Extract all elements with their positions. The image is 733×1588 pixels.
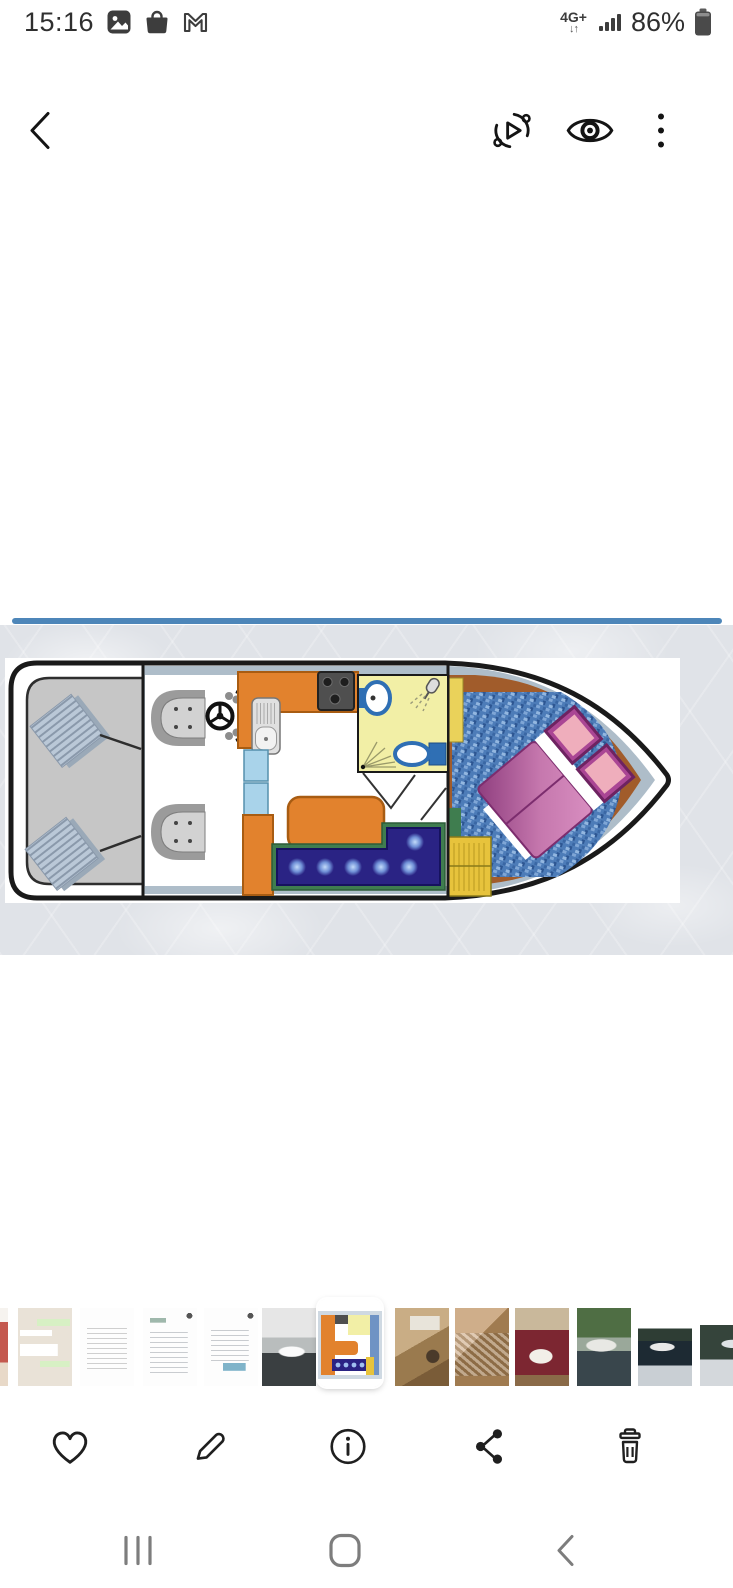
- more-options-button[interactable]: [653, 106, 669, 159]
- thumbnail-chat[interactable]: [18, 1308, 72, 1386]
- gmail-icon: [182, 10, 209, 34]
- thumbnail-document-3[interactable]: [204, 1308, 258, 1386]
- heart-icon: [49, 1427, 91, 1467]
- motion-photo-button[interactable]: [488, 106, 536, 159]
- thumbnail-floor-plan-selected[interactable]: [318, 1299, 382, 1387]
- signal-strength-icon: [597, 10, 623, 34]
- home-icon: [326, 1532, 364, 1570]
- status-time: 15:16: [24, 7, 94, 38]
- thumbnail-saloon[interactable]: [515, 1308, 569, 1386]
- home-button[interactable]: [326, 1532, 364, 1575]
- nav-back-button[interactable]: [550, 1531, 580, 1576]
- action-bar: [0, 1414, 733, 1484]
- kitchen-sink: [252, 698, 280, 754]
- network-type-indicator: 4G+ ↓↑: [560, 10, 587, 35]
- thumbnail-boat-water[interactable]: [638, 1308, 692, 1386]
- phone-screen: { "status_bar": { "time": "15:16", "netw…: [0, 0, 733, 1588]
- filmstrip: [0, 1303, 733, 1395]
- photo-viewer-area[interactable]: [0, 617, 733, 955]
- share-icon: [469, 1426, 509, 1468]
- bow-cabinet: [448, 837, 491, 896]
- app-bar: [0, 95, 733, 170]
- edit-button[interactable]: [189, 1426, 231, 1473]
- trash-icon: [610, 1426, 650, 1468]
- galley-cupboard-1: [244, 750, 268, 781]
- navigation-bar: [0, 1518, 733, 1588]
- thumbnail-boat-partial[interactable]: [700, 1308, 733, 1386]
- network-arrows-icon: ↓↑: [569, 24, 578, 35]
- battery-icon: [693, 7, 713, 37]
- floor-plan-image: [5, 658, 680, 903]
- shopping-bag-icon: [144, 9, 170, 35]
- delete-button[interactable]: [610, 1426, 650, 1473]
- galley-cabinet: [243, 815, 273, 895]
- nav-back-icon: [550, 1531, 580, 1571]
- thumbnail-kitchen[interactable]: [395, 1308, 449, 1386]
- recents-button[interactable]: [118, 1533, 158, 1574]
- pencil-icon: [189, 1426, 231, 1468]
- status-bar: 15:16 4G+ ↓↑ 86%: [0, 0, 733, 42]
- thumbnail-document-2[interactable]: [143, 1308, 197, 1386]
- favorite-button[interactable]: [49, 1427, 91, 1472]
- thumbnail-boat-dock[interactable]: [577, 1308, 631, 1386]
- back-button[interactable]: [19, 105, 65, 160]
- thumbnail-bed[interactable]: [455, 1308, 509, 1386]
- galley-cupboard-2: [244, 783, 268, 815]
- preview-eye-button[interactable]: [565, 111, 615, 154]
- helm-seat-top: [151, 690, 205, 746]
- eye-icon: [565, 111, 615, 149]
- info-icon: [327, 1426, 369, 1468]
- helm-seat-bottom: [151, 804, 205, 860]
- details-button[interactable]: [327, 1426, 369, 1473]
- plan-roof-line: [12, 618, 722, 624]
- motion-photo-icon: [488, 106, 536, 154]
- kebab-menu-icon: [653, 106, 669, 154]
- gallery-icon: [106, 9, 132, 35]
- bathroom: [358, 675, 448, 772]
- thumbnail-document-1[interactable]: [80, 1308, 134, 1386]
- share-button[interactable]: [469, 1426, 509, 1473]
- stove: [318, 672, 354, 710]
- battery-percent: 86%: [631, 7, 685, 38]
- saloon-table: [288, 797, 384, 849]
- thumbnail-photo-edge[interactable]: [0, 1308, 8, 1386]
- recents-icon: [118, 1533, 158, 1569]
- thumbnail-boat-bw[interactable]: [262, 1308, 316, 1386]
